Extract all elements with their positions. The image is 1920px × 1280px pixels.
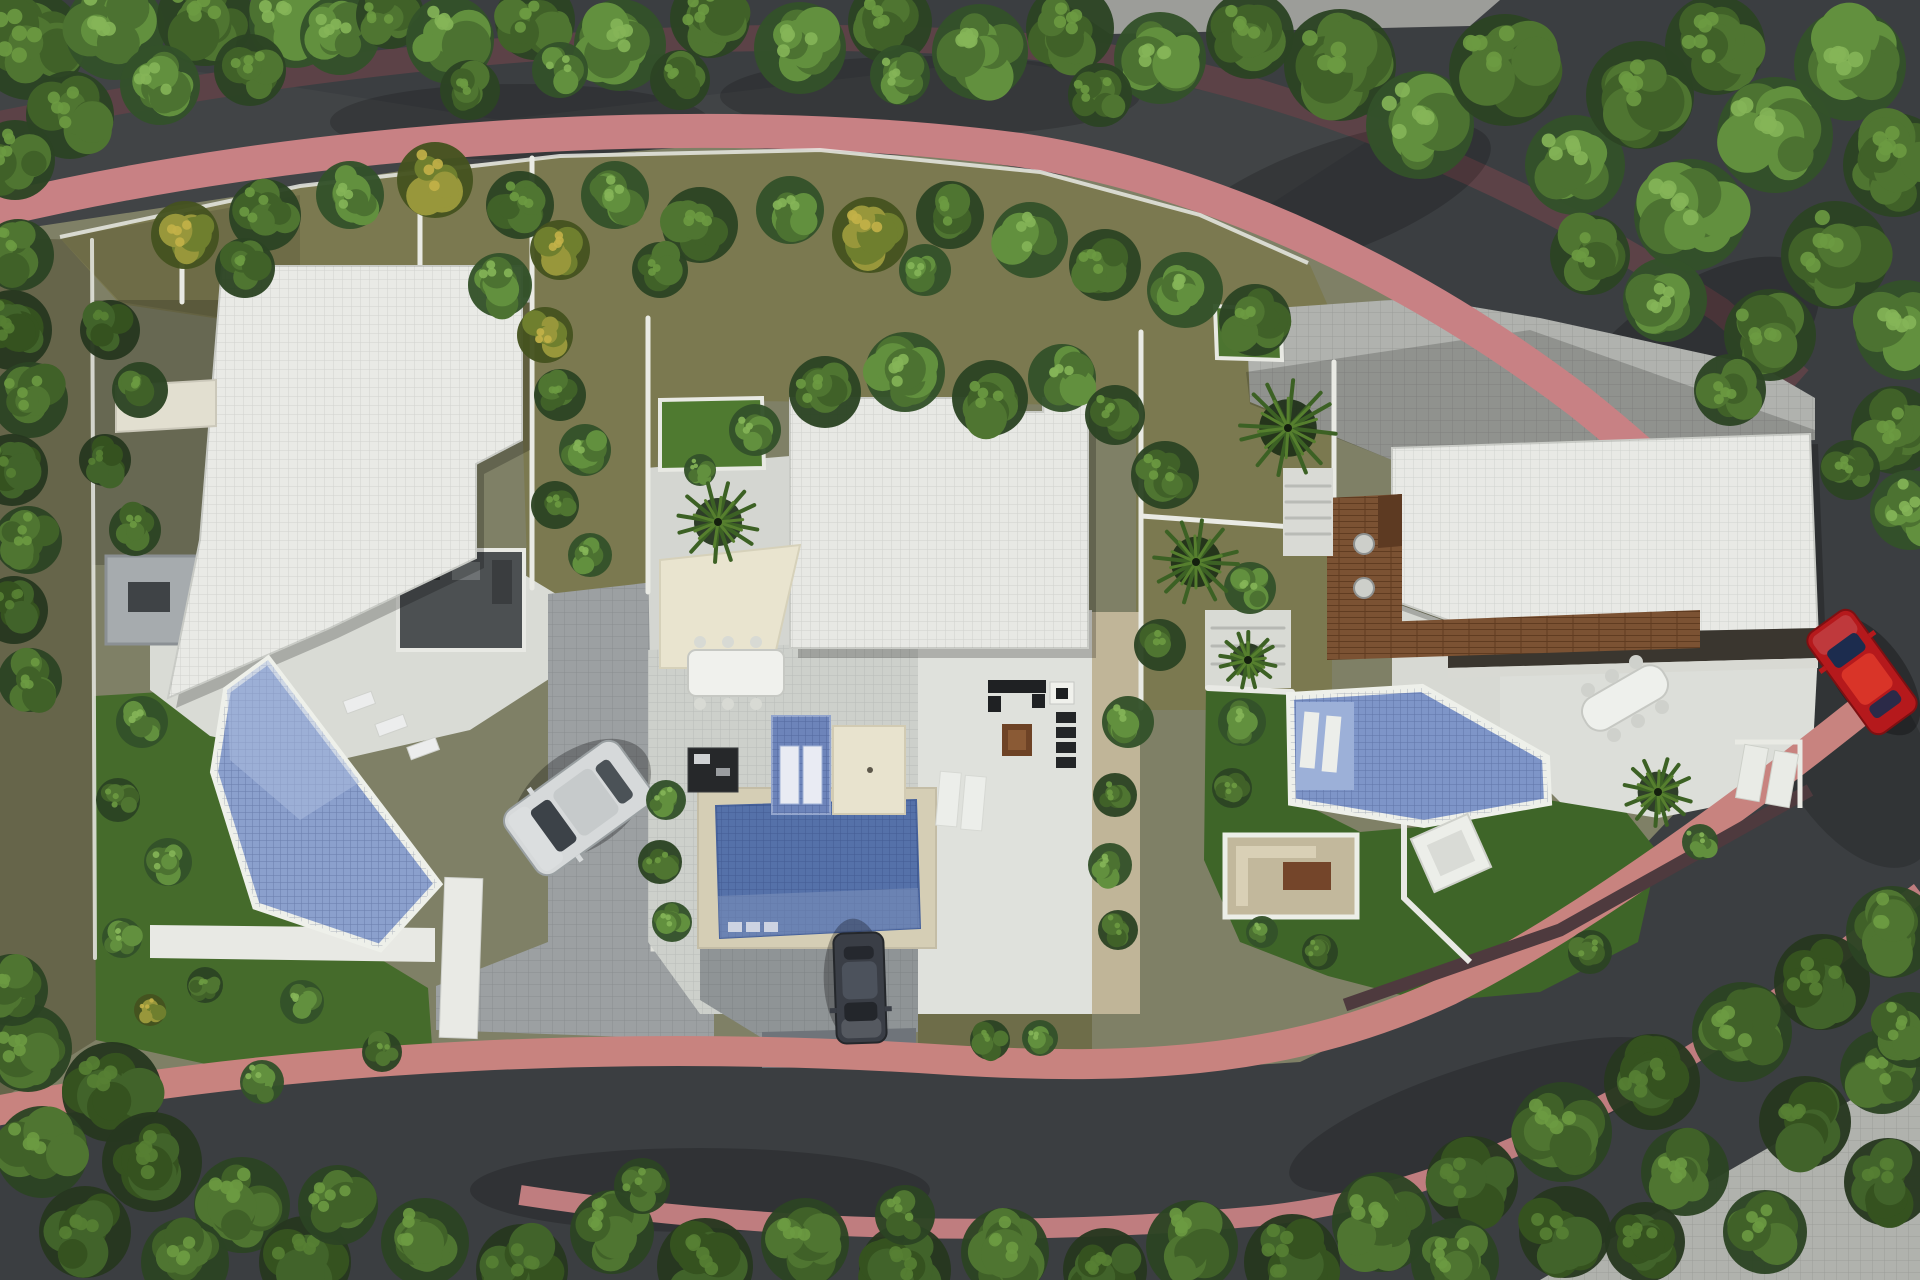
tree — [1604, 1034, 1700, 1130]
tree — [120, 45, 200, 125]
tree-highlight — [1382, 96, 1397, 111]
tree-highlight — [1646, 299, 1658, 311]
tree-highlight — [272, 1247, 285, 1260]
mid-coffee-table-top — [1056, 688, 1068, 699]
tree-highlight — [1103, 77, 1112, 86]
tree-highlight — [96, 450, 103, 457]
tree-highlight — [860, 219, 871, 230]
dining-chair — [1581, 683, 1595, 697]
tree-highlight — [1302, 30, 1318, 46]
tree-highlight — [1070, 9, 1082, 21]
tree-highlight — [1280, 1231, 1293, 1244]
tree — [1069, 229, 1141, 301]
tree-foliage — [1111, 1243, 1141, 1273]
tree-highlight — [1234, 16, 1246, 28]
tree-highlight — [805, 32, 818, 45]
tree-foliage — [965, 397, 1007, 439]
tree-highlight — [172, 226, 182, 236]
tree-highlight — [364, 2, 374, 12]
tree-highlight — [535, 335, 543, 343]
tree — [1028, 344, 1096, 412]
tree — [1022, 1020, 1058, 1056]
tree-highlight — [141, 1165, 155, 1179]
tree-highlight — [1275, 1244, 1288, 1257]
tree — [0, 648, 62, 713]
tree-foliage — [499, 198, 520, 219]
tree-highlight — [1801, 957, 1814, 970]
tree-highlight — [1736, 308, 1749, 321]
tree-highlight — [1626, 91, 1641, 106]
tree-highlight — [622, 1183, 630, 1191]
tree-highlight — [1646, 1227, 1657, 1238]
tree-highlight — [417, 149, 428, 160]
tree-highlight — [969, 381, 980, 392]
tree-highlight — [100, 312, 108, 320]
dining-chair — [750, 698, 762, 710]
tree-foliage — [1102, 94, 1126, 118]
tree-highlight — [487, 268, 496, 277]
tree-highlight — [1419, 110, 1434, 125]
deck-table — [1354, 578, 1374, 598]
tree-highlight — [1902, 315, 1916, 329]
tree-highlight — [1686, 831, 1691, 836]
tree-highlight — [1898, 478, 1909, 489]
tree-highlight — [1085, 1261, 1097, 1273]
tree-highlight — [93, 17, 107, 31]
tree — [1682, 824, 1718, 860]
tree-highlight — [245, 1073, 251, 1079]
tree-foliage — [298, 993, 315, 1010]
tree-highlight — [905, 1213, 913, 1221]
tree-highlight — [1054, 16, 1066, 28]
tree-highlight — [981, 1030, 987, 1036]
tree-highlight — [23, 512, 33, 522]
tree-highlight — [1828, 965, 1841, 978]
kitchen-top — [694, 754, 710, 764]
tree-highlight — [504, 268, 513, 277]
tree-highlight — [1486, 56, 1502, 72]
tree-highlight — [546, 496, 553, 503]
tree-highlight — [1848, 52, 1864, 68]
tree-highlight — [182, 220, 192, 230]
tree-highlight — [1886, 510, 1897, 521]
tree-highlight — [549, 386, 556, 393]
black-chair — [1056, 727, 1076, 738]
tree — [298, 1165, 378, 1245]
tree-highlight — [553, 494, 560, 501]
tree-highlight — [340, 22, 351, 33]
tree-highlight — [1793, 1104, 1806, 1117]
tree-highlight — [8, 1035, 20, 1047]
tree-highlight — [1746, 1211, 1758, 1223]
tree-highlight — [1902, 505, 1913, 516]
tree-highlight — [1106, 781, 1112, 787]
tree-highlight — [258, 195, 268, 205]
tree — [1218, 698, 1266, 746]
tree — [39, 1186, 131, 1278]
tree-highlight — [781, 30, 794, 43]
tree-foliage — [335, 165, 357, 187]
tree-highlight — [1882, 1158, 1894, 1170]
left-gate-wall — [439, 877, 483, 1038]
tree-highlight — [1549, 1215, 1562, 1228]
tree — [517, 307, 573, 363]
tree-highlight — [638, 1168, 646, 1176]
glass-door — [803, 746, 822, 804]
right-stairs — [1283, 468, 1333, 556]
tree — [1102, 696, 1154, 748]
tree — [1219, 284, 1291, 356]
kitchen-top — [716, 768, 730, 776]
tree — [280, 980, 324, 1024]
tree-highlight — [1654, 283, 1666, 295]
tree-highlight — [436, 18, 448, 30]
tree-highlight — [872, 222, 883, 233]
tree-highlight — [1623, 1236, 1634, 1247]
tree-highlight — [318, 1201, 329, 1212]
tree-highlight — [1721, 1025, 1735, 1039]
tree-foliage — [58, 1239, 88, 1269]
tree-highlight — [154, 863, 161, 870]
tree — [1302, 934, 1338, 970]
tree-highlight — [738, 417, 745, 424]
tree-highlight — [1093, 264, 1103, 274]
tree-foliage — [1249, 591, 1266, 608]
tree — [614, 1158, 670, 1214]
tree-highlight — [993, 390, 1004, 401]
tree-highlight — [1329, 58, 1345, 74]
tree-highlight — [1876, 915, 1889, 928]
tree-highlight — [1158, 46, 1171, 59]
tree-highlight — [1174, 274, 1185, 285]
tree-highlight — [655, 857, 661, 863]
tree-foliage — [412, 33, 441, 62]
tree — [397, 142, 473, 218]
tree-highlight — [667, 921, 673, 927]
tree-highlight — [1699, 832, 1704, 837]
tree-highlight — [132, 711, 139, 718]
mid-sofa — [988, 680, 1046, 693]
tree-highlight — [1096, 395, 1104, 403]
tree — [102, 1112, 202, 1212]
tree-highlight — [1236, 708, 1243, 715]
tree-highlight — [479, 269, 488, 278]
tree-highlight — [1787, 977, 1800, 990]
tree-highlight — [592, 1210, 604, 1222]
tree-highlight — [1592, 939, 1598, 945]
tree — [650, 50, 710, 110]
tree-highlight — [486, 1256, 499, 1269]
tree-highlight — [86, 1219, 99, 1232]
tree-foliage — [46, 1133, 89, 1176]
tree-highlight — [510, 192, 520, 202]
tree-highlight — [209, 1177, 222, 1190]
tree-highlight — [255, 51, 265, 61]
tree-highlight — [962, 35, 975, 48]
tree-highlight — [1351, 1206, 1365, 1220]
tree — [214, 34, 286, 106]
tree-highlight — [592, 1199, 604, 1211]
tree-highlight — [618, 39, 631, 52]
tree — [559, 424, 611, 476]
tree-highlight — [234, 256, 242, 264]
tree-highlight — [3, 1050, 15, 1062]
tree — [240, 1060, 284, 1104]
tree — [1224, 562, 1276, 614]
tree-highlight — [4, 133, 15, 144]
palm-trunk-top — [714, 518, 722, 526]
tree-highlight — [384, 14, 394, 24]
tree — [530, 220, 590, 280]
tree-highlight — [564, 64, 572, 72]
tree — [932, 4, 1028, 101]
tree-highlight — [1107, 403, 1115, 411]
tree-highlight — [1750, 332, 1763, 345]
tree-highlight — [1778, 1106, 1791, 1119]
dining-chair — [1655, 700, 1669, 714]
tree-highlight — [1807, 970, 1820, 983]
tree-highlight — [20, 680, 29, 689]
dining-chair — [750, 636, 762, 648]
tree-highlight — [1033, 1035, 1038, 1040]
tree-highlight — [667, 787, 673, 793]
tree-highlight — [1823, 48, 1839, 64]
tree-highlight — [1738, 1033, 1752, 1047]
tree-highlight — [646, 858, 652, 864]
tree — [646, 780, 686, 820]
tree — [215, 238, 275, 298]
tree-highlight — [511, 1264, 524, 1277]
tree-highlight — [245, 187, 255, 197]
tree-highlight — [573, 444, 580, 451]
tree-highlight — [1531, 1213, 1544, 1226]
tree — [754, 2, 846, 94]
tree-highlight — [112, 801, 118, 807]
tree-highlight — [1761, 116, 1777, 132]
tree-highlight — [12, 25, 27, 40]
tree — [151, 201, 219, 269]
tree-highlight — [153, 851, 160, 858]
tree-highlight — [1721, 1006, 1735, 1020]
right-deck-bench — [1378, 494, 1402, 548]
pool-step — [728, 922, 742, 932]
tree-highlight — [259, 0, 272, 13]
tree-highlight — [1267, 1224, 1280, 1237]
tree-foliage — [697, 464, 711, 478]
tree — [532, 42, 588, 98]
tree-highlight — [786, 195, 796, 205]
tree-highlight — [429, 180, 440, 191]
tree-highlight — [1235, 716, 1242, 723]
tree-highlight — [683, 215, 694, 226]
tree-highlight — [1081, 93, 1090, 102]
tree-highlight — [427, 6, 439, 18]
tree-highlight — [1578, 950, 1584, 956]
tree-highlight — [907, 262, 914, 269]
dining-chair — [1629, 655, 1643, 669]
tree-highlight — [384, 1044, 390, 1050]
tree-highlight — [1892, 407, 1904, 419]
tree-highlight — [665, 915, 671, 921]
tree-highlight — [199, 980, 204, 985]
tree-highlight — [1815, 210, 1830, 225]
tree-foliage — [1102, 244, 1124, 266]
tree-highlight — [1652, 1067, 1665, 1080]
tree-highlight — [183, 1236, 195, 1248]
tree-highlight — [1658, 1156, 1670, 1168]
tree-highlight — [130, 521, 137, 528]
tree-highlight — [555, 501, 562, 508]
tree-highlight — [506, 181, 516, 191]
tree — [1694, 354, 1766, 426]
tree-highlight — [1629, 1070, 1642, 1083]
terrace-lounger — [961, 775, 987, 831]
tree-highlight — [93, 312, 101, 320]
tree-highlight — [1108, 794, 1114, 800]
tree-foliage — [743, 432, 762, 451]
tree-foliage — [896, 52, 924, 80]
tree-highlight — [176, 1253, 188, 1265]
tree-highlight — [17, 387, 28, 398]
tree-highlight — [777, 198, 787, 208]
tree-highlight — [892, 1196, 900, 1204]
tree-highlight — [12, 47, 27, 62]
tree — [534, 369, 586, 421]
tree-highlight — [1742, 1230, 1754, 1242]
tree-highlight — [1151, 459, 1161, 469]
tree-highlight — [1349, 1194, 1363, 1208]
tree — [187, 967, 223, 1003]
tree-highlight — [432, 159, 443, 170]
tree-foliage — [221, 1210, 251, 1240]
tree-highlight — [1453, 1185, 1466, 1198]
tree-highlight — [336, 187, 346, 197]
tree-highlight — [660, 913, 666, 919]
tree-highlight — [847, 210, 858, 221]
tree — [80, 300, 140, 360]
tree-highlight — [1054, 364, 1064, 374]
tree-highlight — [1310, 940, 1315, 945]
tree-highlight — [698, 4, 709, 15]
tree-foliage — [71, 101, 113, 143]
tree-highlight — [873, 17, 885, 29]
tree — [1085, 385, 1145, 445]
tree-highlight — [1580, 232, 1591, 243]
tree-highlight — [515, 22, 526, 33]
tree-highlight — [88, 458, 95, 465]
tree-highlight — [1224, 782, 1230, 788]
pool-step — [764, 922, 778, 932]
tree — [1131, 441, 1199, 509]
tree — [1068, 63, 1132, 127]
tree-highlight — [1886, 1002, 1897, 1013]
tree-highlight — [1877, 421, 1889, 433]
tree-highlight — [1630, 59, 1645, 74]
tree-highlight — [1239, 582, 1246, 589]
tree-highlight — [536, 328, 544, 336]
tree-highlight — [1881, 1171, 1893, 1183]
tree-highlight — [892, 376, 903, 387]
tree-highlight — [1623, 1225, 1634, 1236]
palm-trunk-top — [1284, 424, 1292, 432]
tree-highlight — [5, 600, 15, 610]
tree-highlight — [802, 393, 812, 403]
tree-highlight — [524, 199, 534, 209]
tree-highlight — [662, 852, 668, 858]
tree-highlight — [237, 1168, 250, 1181]
lounge-bench — [1236, 846, 1316, 858]
tree-highlight — [1800, 252, 1815, 267]
tree-highlight — [904, 1257, 917, 1270]
tree-highlight — [1081, 85, 1090, 94]
tree-highlight — [892, 361, 903, 372]
tree-highlight — [1116, 930, 1122, 936]
tree-highlight — [1439, 1260, 1451, 1272]
tree-highlight — [7, 9, 22, 24]
tree-highlight — [1885, 126, 1900, 141]
tree — [1820, 440, 1880, 500]
tree-highlight — [1892, 143, 1907, 158]
tree-foliage — [1511, 37, 1560, 86]
tree-highlight — [1702, 49, 1716, 63]
tree — [652, 902, 692, 942]
tree — [440, 60, 500, 120]
tree-highlight — [1250, 583, 1257, 590]
tree-highlight — [32, 376, 43, 387]
dark-car-mirror — [830, 1008, 837, 1013]
fire-table — [1283, 862, 1331, 890]
tree — [832, 197, 908, 273]
tree-highlight — [615, 185, 625, 195]
tree-foliage — [971, 1033, 993, 1055]
tree-highlight — [692, 459, 696, 463]
tree-highlight — [1273, 1264, 1286, 1277]
tree-foliage — [121, 797, 137, 813]
tree-highlight — [648, 268, 656, 276]
palm-trunk-top — [1192, 558, 1200, 566]
tree-highlight — [27, 27, 42, 42]
tree-highlight — [546, 61, 554, 69]
tree-highlight — [1840, 456, 1848, 464]
tree-highlight — [23, 1137, 36, 1150]
tree-highlight — [654, 795, 660, 801]
tree-foliage — [151, 1005, 167, 1021]
tree-highlight — [98, 1070, 112, 1084]
tree — [899, 244, 951, 296]
tree-highlight — [1165, 472, 1175, 482]
tree-highlight — [1016, 221, 1027, 232]
tree-highlight — [1562, 1111, 1576, 1125]
dining-chair — [722, 636, 734, 648]
tree-highlight — [1138, 45, 1151, 58]
tree-highlight — [31, 658, 40, 667]
dark-car-roof — [842, 961, 878, 1000]
tree-highlight — [583, 547, 589, 553]
tree-highlight — [67, 86, 79, 98]
tree-highlight — [132, 379, 140, 387]
tree-highlight — [1078, 252, 1088, 262]
tree-highlight — [1556, 1227, 1569, 1240]
tree-highlight — [694, 464, 698, 468]
tree-highlight — [339, 199, 349, 209]
tree-highlight — [1888, 1030, 1899, 1041]
tree-highlight — [401, 1234, 413, 1246]
tree-highlight — [1370, 1204, 1384, 1218]
tree-highlight — [325, 1189, 336, 1200]
tree-highlight — [975, 397, 986, 408]
tree-highlight — [635, 1177, 643, 1185]
tree-highlight — [1395, 82, 1410, 97]
